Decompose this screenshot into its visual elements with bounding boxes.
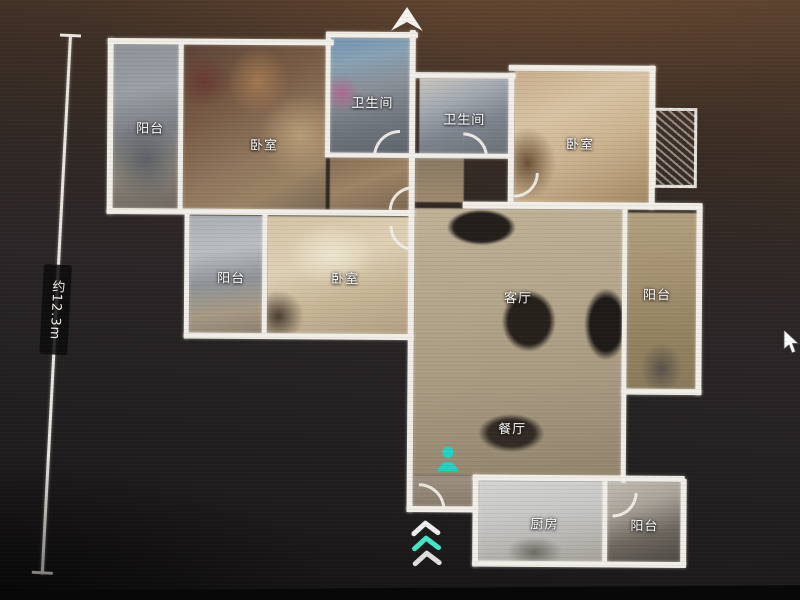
wall-segment [602, 478, 608, 564]
dimension-label: 约12.3m [45, 279, 67, 341]
north-arrow-icon [391, 7, 423, 31]
room-label-bedroom-mid-left: 卧室 [331, 268, 359, 287]
wall-segment [509, 65, 656, 72]
room-label-dining-room: 餐厅 [498, 418, 526, 437]
room-label-bathroom-top: 卫生间 [351, 92, 393, 111]
viewer-position-marker[interactable] [436, 445, 460, 471]
wall-segment [472, 561, 686, 568]
wall-segment [184, 332, 414, 340]
room-label-bedroom-top-right: 卧室 [566, 134, 594, 153]
wall-segment [184, 210, 190, 338]
room-label-balcony-right: 阳台 [643, 284, 671, 303]
room-label-bathroom-inner: 卫生间 [443, 109, 485, 128]
wall-segment [107, 38, 114, 214]
wall-segment [262, 213, 268, 335]
chevron-up-icon [412, 550, 443, 567]
wall-segment [472, 475, 479, 567]
room-label-bedroom-top-left: 卧室 [250, 134, 278, 153]
entrance-direction-chevrons [410, 520, 442, 567]
wall-segment [414, 72, 516, 79]
floorplan: 阳台 卧室 卫生间 卫生间 卧室 阳台 卧室 客厅 阳台 餐厅 厨房 阳台 [0, 0, 800, 600]
wall-segment [326, 31, 418, 38]
room-bedroom-top-left[interactable] [183, 44, 327, 210]
floorplan-viewer-screen: 阳台 卧室 卫生间 卫生间 卧室 阳台 卧室 客厅 阳台 餐厅 厨房 阳台 [0, 0, 800, 600]
wall-segment [621, 389, 701, 396]
wall-segment [325, 35, 331, 157]
room-label-balcony-mid-left: 阳台 [217, 267, 245, 286]
wall-segment [695, 208, 702, 395]
ac-platform-hatch [653, 108, 698, 188]
wall-segment [680, 479, 687, 565]
mouse-pointer-icon [783, 330, 800, 356]
room-hallway[interactable] [415, 158, 464, 202]
dimension-label-box: 约12.3m [39, 264, 72, 355]
wall-segment [107, 208, 415, 216]
wall-segment [621, 393, 627, 483]
room-label-kitchen: 厨房 [530, 513, 558, 532]
room-label-balcony-top-left: 阳台 [136, 118, 164, 137]
room-label-balcony-bottom: 阳台 [630, 515, 658, 534]
room-label-living-room: 客厅 [504, 287, 532, 306]
